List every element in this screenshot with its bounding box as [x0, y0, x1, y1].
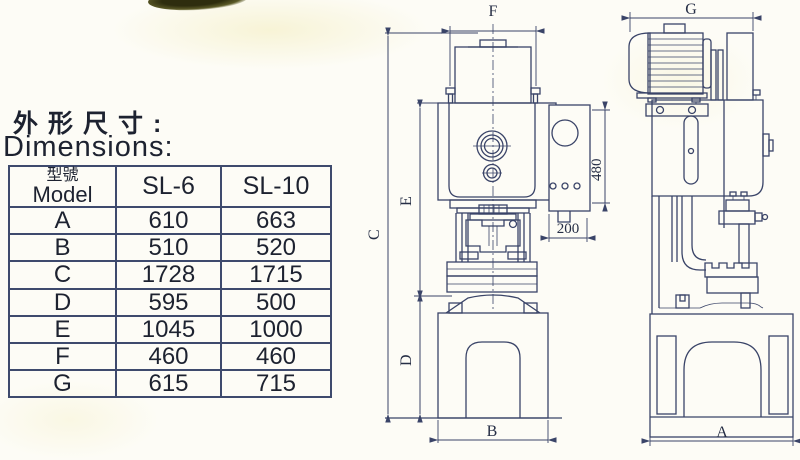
value-cell: 1045	[116, 316, 221, 343]
dim-label-d: D	[398, 354, 415, 366]
dim-cell: D	[9, 289, 116, 316]
value-cell: 520	[221, 234, 331, 261]
technical-drawing: F C E D B 480 200	[350, 0, 800, 453]
dim-cell: B	[9, 234, 116, 261]
dim-label-e: E	[398, 196, 415, 206]
value-cell: 510	[116, 234, 221, 261]
dim-cell: A	[9, 207, 116, 234]
dim-cell: G	[9, 370, 116, 397]
column-header-sl6: SL-6	[116, 166, 221, 207]
table-row: F 460 460	[9, 343, 331, 370]
front-view-dimensions: F C E D B 480 200	[366, 3, 610, 443]
dim-cell: E	[9, 316, 116, 343]
value-cell: 460	[221, 343, 331, 370]
value-cell: 615	[116, 370, 221, 397]
value-cell: 610	[116, 207, 221, 234]
dim-label-200: 200	[557, 221, 580, 237]
value-cell: 1728	[116, 261, 221, 288]
table-row: B 510 520	[9, 234, 331, 261]
page-title-english: Dimensions:	[3, 131, 174, 164]
side-view-press	[629, 24, 793, 437]
control-panel-box	[549, 105, 590, 222]
column-header-sl10: SL-10	[221, 166, 331, 207]
dim-label-f: F	[489, 3, 498, 20]
table-row: D 595 500	[9, 289, 331, 316]
dim-label-g: G	[685, 1, 697, 18]
catalog-page: 外形尺寸: Dimensions: 型號 Model SL-6 SL-10 A …	[0, 0, 800, 453]
table-row: A 610 663	[9, 207, 331, 234]
table-row: C 1728 1715	[9, 261, 331, 288]
dim-label-a: A	[716, 424, 728, 441]
dimensions-table: 型號 Model SL-6 SL-10 A 610 663 B 510 520 …	[8, 165, 332, 398]
value-cell: 500	[221, 289, 331, 316]
value-cell: 663	[221, 207, 331, 234]
value-cell: 1000	[221, 316, 331, 343]
model-label-en: Model	[10, 184, 115, 206]
value-cell: 715	[221, 370, 331, 397]
table-row: G 615 715	[9, 370, 331, 397]
table-header-row: 型號 Model SL-6 SL-10	[9, 166, 331, 207]
value-cell: 460	[116, 343, 221, 370]
scan-artifact	[148, 0, 249, 13]
value-cell: 595	[116, 289, 221, 316]
value-cell: 1715	[221, 261, 331, 288]
dim-label-b: B	[487, 423, 498, 440]
table-row: E 1045 1000	[9, 316, 331, 343]
dim-label-480: 480	[589, 159, 605, 182]
dim-label-c: C	[366, 229, 383, 240]
dim-cell: F	[9, 343, 116, 370]
model-header-cell: 型號 Model	[9, 166, 116, 207]
dim-cell: C	[9, 261, 116, 288]
